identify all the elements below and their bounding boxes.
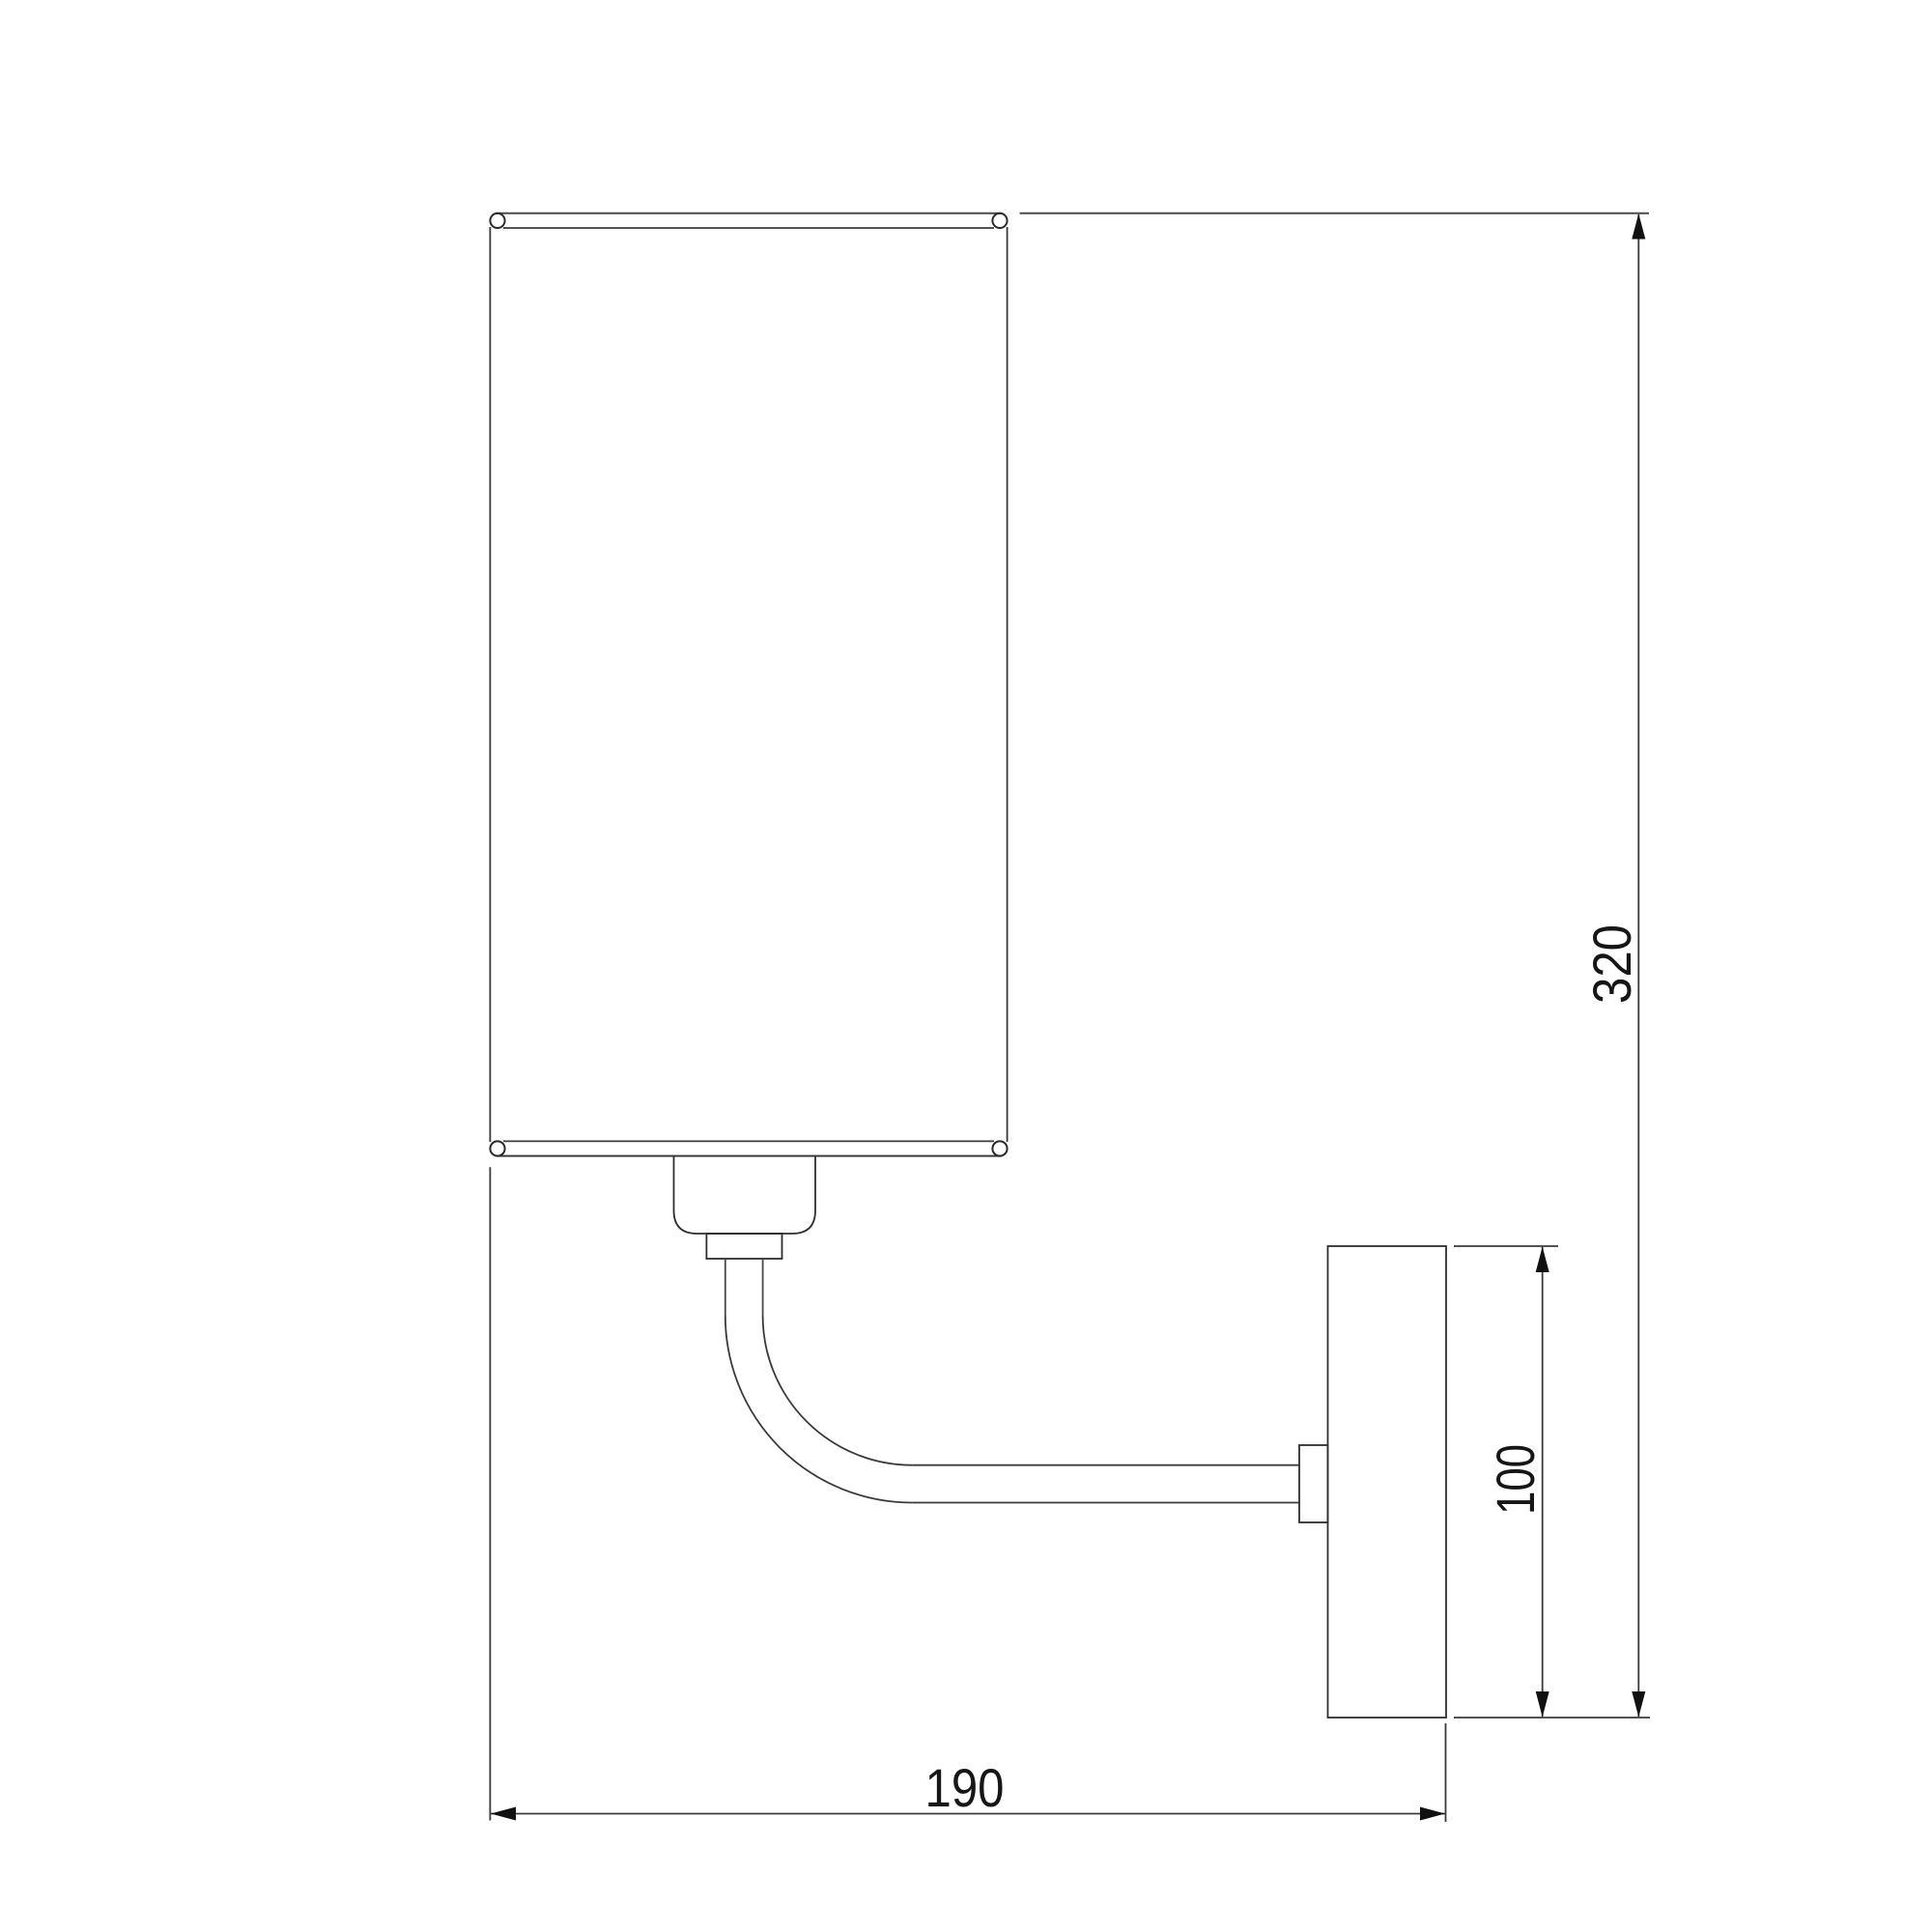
svg-text:190: 190 xyxy=(925,1757,1005,1818)
svg-text:320: 320 xyxy=(1581,924,1642,1004)
svg-text:100: 100 xyxy=(1485,1444,1546,1515)
